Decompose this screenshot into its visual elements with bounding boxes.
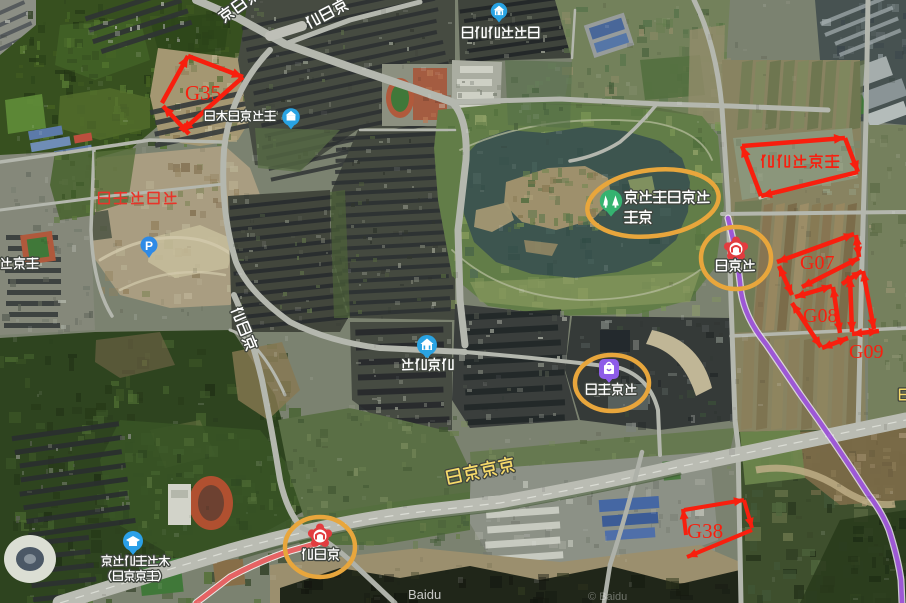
svg-text:G08: G08 <box>803 305 837 327</box>
svg-text:G09: G09 <box>849 341 883 363</box>
svg-text:P: P <box>145 239 153 253</box>
svg-text:G38: G38 <box>687 519 723 543</box>
svg-text:G35: G35 <box>185 81 221 105</box>
svg-text:G07: G07 <box>800 252 834 274</box>
svg-text:© Baidu: © Baidu <box>588 591 627 603</box>
svg-text:Baidu: Baidu <box>408 587 441 602</box>
